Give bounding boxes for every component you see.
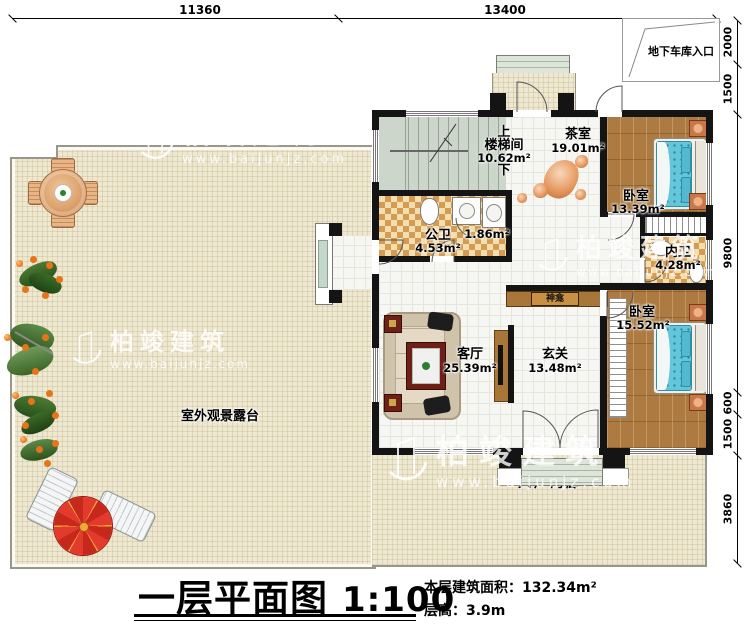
bed-pillow bbox=[681, 147, 691, 173]
window bbox=[415, 448, 493, 455]
window bbox=[372, 348, 379, 402]
stone bbox=[517, 193, 527, 203]
floor-height-line: 层高：3.9m bbox=[424, 600, 505, 620]
bedroom-top-area: 13.39m² bbox=[608, 203, 668, 215]
side-table-top bbox=[389, 399, 396, 406]
floor-area-label: 本层建筑面积： bbox=[424, 580, 522, 596]
floor-plan: 11360 13400 2000 1500 9800 600 1500 3860… bbox=[0, 0, 750, 629]
toilet bbox=[420, 198, 439, 225]
washroom-area: 1.86m² bbox=[462, 228, 512, 240]
shrine-cabinet: 神龛 bbox=[506, 291, 608, 307]
wall-bedroom-top-west bbox=[600, 110, 607, 217]
wall-tv bbox=[508, 325, 514, 403]
door-gap-tea-north bbox=[598, 110, 622, 117]
foyer-area: 13.48m² bbox=[523, 362, 587, 374]
table-plant bbox=[60, 190, 66, 196]
bedroom-bottom-area: 15.52m² bbox=[612, 319, 674, 331]
shrine-label: 神龛 bbox=[531, 292, 579, 306]
nightstand bbox=[689, 120, 707, 137]
door-gap-west bbox=[372, 240, 379, 274]
bed-pillow bbox=[681, 361, 691, 387]
porch-column-base bbox=[601, 468, 629, 486]
bed-headboard bbox=[695, 325, 706, 391]
plant-fruit bbox=[12, 392, 19, 399]
bed bbox=[653, 322, 707, 394]
door-gap-bedroom-bottom bbox=[600, 290, 607, 316]
wall-stair-south bbox=[372, 190, 512, 196]
plant-leaf bbox=[4, 343, 57, 380]
window bbox=[630, 448, 696, 455]
bed-pillow bbox=[681, 331, 691, 357]
armchair bbox=[427, 311, 454, 331]
dim-right-1500b: 1500 bbox=[722, 419, 735, 450]
door-gap-foyer bbox=[523, 448, 599, 455]
foyer-name: 玄关 bbox=[529, 348, 581, 361]
plant-fruit bbox=[20, 436, 27, 443]
title-underline bbox=[134, 614, 416, 617]
living-room-area: 25.39m² bbox=[438, 362, 502, 374]
bed-blanket-fold bbox=[657, 326, 670, 390]
nightstand bbox=[689, 304, 707, 321]
door-arc-tea-north bbox=[596, 86, 622, 112]
floor-height-value: 3.9m bbox=[466, 603, 505, 619]
top-dimension-line bbox=[12, 18, 716, 19]
table-plant bbox=[422, 362, 430, 370]
table-plate bbox=[54, 184, 72, 202]
terrace-label: 室外观景露台 bbox=[160, 410, 280, 423]
window bbox=[706, 240, 713, 280]
tea-room-area: 19.01m² bbox=[548, 142, 608, 154]
title-underline-thin bbox=[134, 620, 416, 621]
umbrella bbox=[54, 497, 112, 555]
porch-column bbox=[490, 93, 506, 111]
side-table bbox=[384, 315, 402, 333]
side-table bbox=[384, 394, 402, 412]
wardrobe bbox=[645, 214, 707, 235]
porch-column bbox=[558, 93, 574, 111]
wall-bath-east bbox=[506, 190, 512, 262]
floor-height-label: 层高： bbox=[424, 603, 466, 619]
window bbox=[406, 110, 478, 117]
door-gap-ensuite bbox=[640, 258, 645, 283]
dim-right-1500a: 1500 bbox=[722, 74, 735, 105]
dim-right-2000: 2000 bbox=[722, 27, 735, 58]
window bbox=[706, 324, 713, 394]
plant-fruit bbox=[16, 260, 23, 267]
terrace-table-set bbox=[32, 162, 92, 222]
floor-area-value: 132.34m² bbox=[522, 580, 597, 596]
stair-landing bbox=[379, 117, 406, 190]
bay-window-glass bbox=[318, 240, 328, 288]
stair-down-label: 下 bbox=[465, 164, 543, 177]
sink bbox=[486, 204, 502, 222]
dim-right-3860: 3860 bbox=[722, 494, 735, 525]
dim-top-left: 11360 bbox=[150, 3, 250, 17]
bay-window-floor bbox=[332, 236, 374, 290]
garage-entrance-box: 地下车库入口 bbox=[622, 18, 720, 82]
wall-ensuite-south bbox=[600, 283, 713, 290]
public-bath-area: 4.53m² bbox=[410, 242, 466, 254]
bay-column bbox=[329, 223, 342, 236]
ensuite-area: 4.28m² bbox=[652, 259, 704, 271]
plant-pine bbox=[4, 318, 64, 384]
nightstand bbox=[689, 193, 707, 210]
plant bbox=[14, 254, 68, 306]
stone bbox=[575, 155, 588, 168]
side-table-top bbox=[389, 320, 396, 327]
garage-entrance-label: 地下车库入口 bbox=[645, 43, 717, 59]
vanity-counter bbox=[482, 197, 506, 228]
door-gap-bath bbox=[430, 256, 454, 262]
living-room-name: 客厅 bbox=[444, 348, 496, 361]
stairwell-labels: 上 楼梯间 10.62m² 下 bbox=[465, 126, 543, 177]
bay-column bbox=[329, 290, 342, 303]
vanity-counter bbox=[452, 197, 481, 225]
coffee-table-glass bbox=[412, 348, 440, 384]
terrace-corner-notch bbox=[10, 145, 58, 159]
umbrella-pole bbox=[79, 522, 89, 532]
window bbox=[372, 130, 379, 182]
dim-right-600: 600 bbox=[722, 392, 735, 415]
tea-room-name: 茶室 bbox=[554, 128, 602, 141]
dim-right-9800: 9800 bbox=[722, 238, 735, 269]
sink bbox=[459, 203, 475, 219]
nightstand bbox=[689, 394, 707, 411]
stone bbox=[575, 189, 586, 200]
stone bbox=[533, 183, 548, 198]
window bbox=[706, 143, 713, 205]
porch-steps bbox=[521, 458, 603, 486]
north-porch-steps bbox=[496, 55, 570, 75]
door-gap-porch bbox=[513, 110, 551, 117]
wall-wardrobe-front bbox=[645, 233, 706, 236]
floor-area-line: 本层建筑面积：132.34m² bbox=[424, 577, 597, 597]
dim-top-right: 13400 bbox=[455, 3, 555, 17]
plant-fruit bbox=[4, 334, 11, 341]
wall-shrine bbox=[506, 285, 606, 291]
right-dimension-line bbox=[737, 20, 738, 563]
